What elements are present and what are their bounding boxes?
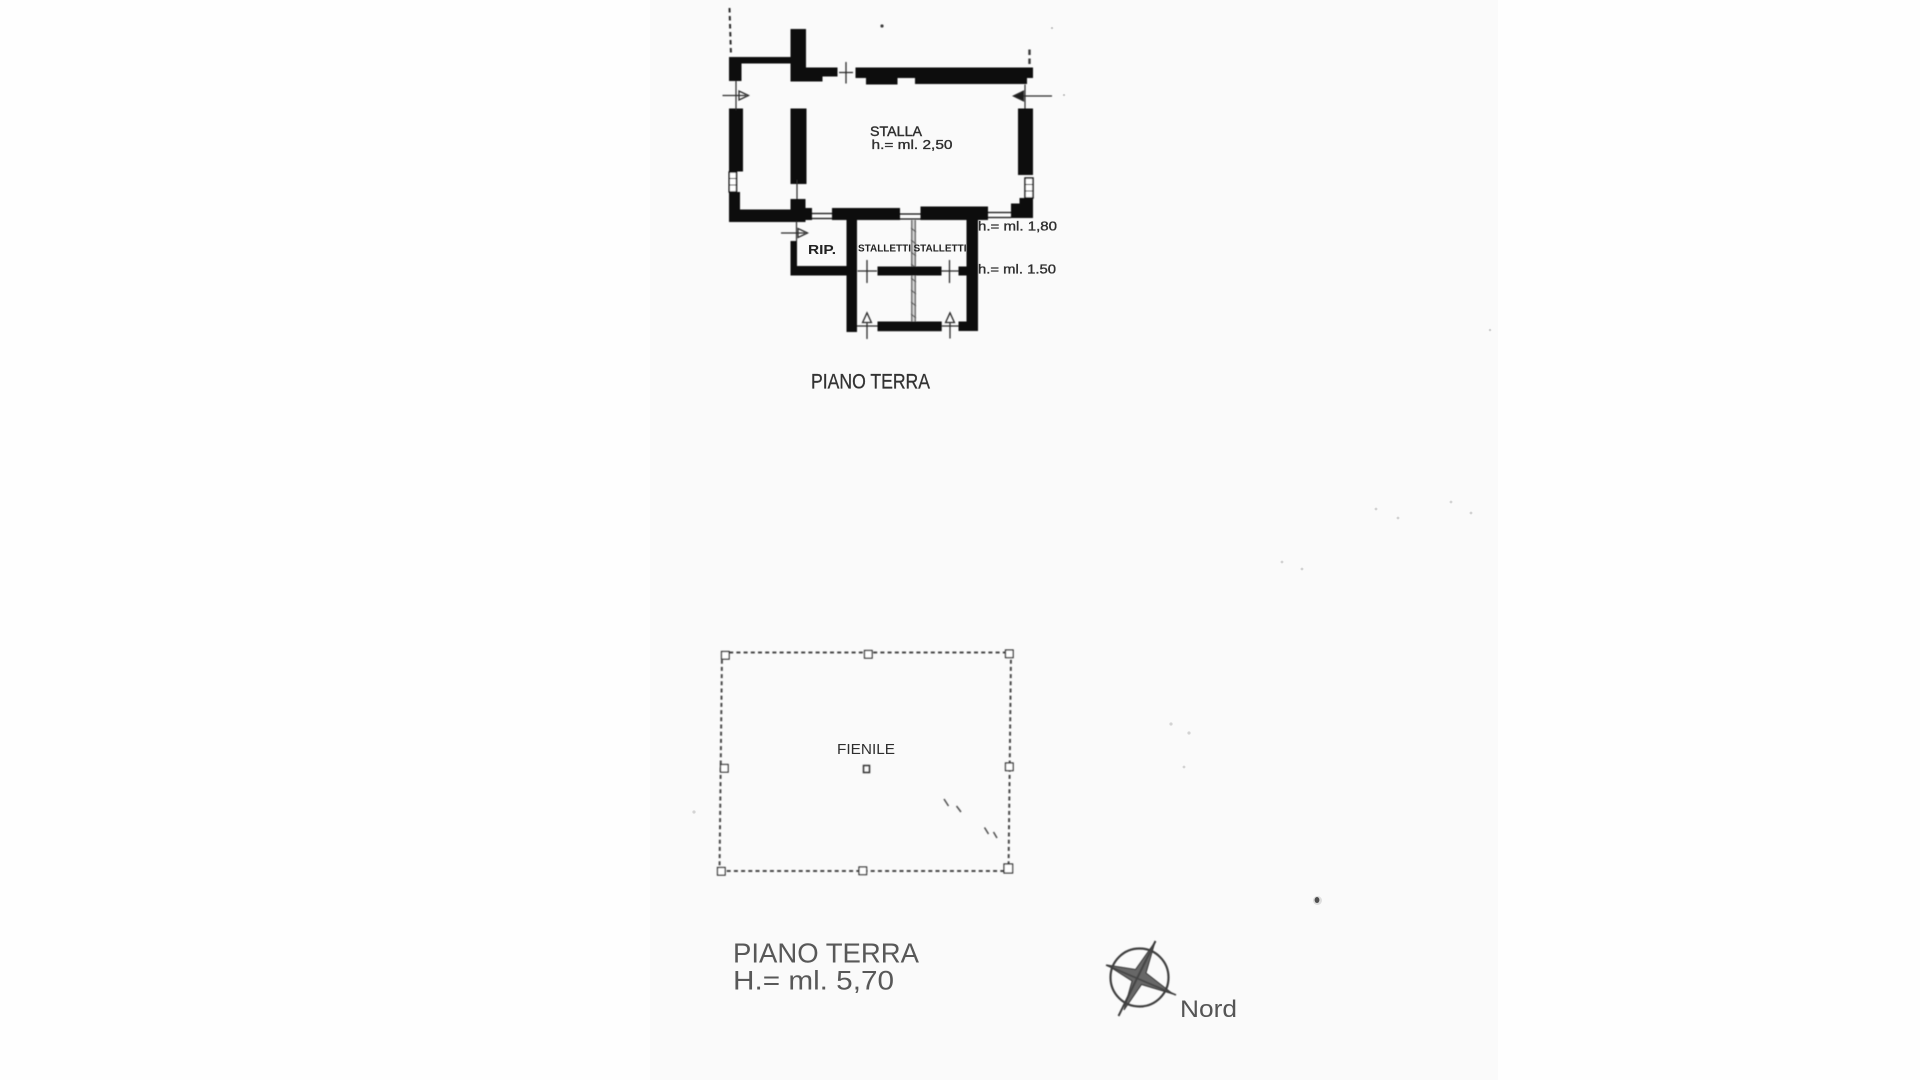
svg-text:STALLETTI: STALLETTI — [858, 244, 911, 255]
svg-text:H.= ml. 5,70: H.= ml. 5,70 — [733, 966, 894, 996]
svg-text:RIP.: RIP. — [808, 242, 836, 257]
svg-text:PIANO TERRA: PIANO TERRA — [811, 370, 931, 394]
svg-text:PIANO TERRA: PIANO TERRA — [733, 938, 919, 969]
svg-text:STALLETTI: STALLETTI — [914, 244, 967, 255]
svg-text:FIENILE: FIENILE — [837, 741, 895, 758]
svg-text:h.= ml. 1,80: h.= ml. 1,80 — [978, 219, 1057, 234]
svg-text:h.= ml. 2,50: h.= ml. 2,50 — [872, 137, 953, 152]
svg-text:h.= ml. 1.50: h.= ml. 1.50 — [978, 262, 1056, 277]
svg-text:Nord: Nord — [1180, 996, 1237, 1023]
